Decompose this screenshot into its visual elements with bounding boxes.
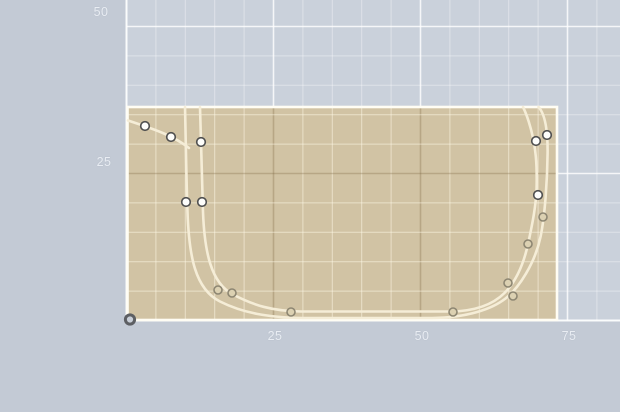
sketch-sheet[interactable] [128, 107, 558, 320]
control-point[interactable] [228, 289, 236, 297]
control-point[interactable] [534, 191, 543, 200]
origin-marker[interactable] [125, 315, 134, 324]
control-point[interactable] [197, 138, 206, 147]
control-point[interactable] [543, 131, 552, 140]
control-point[interactable] [509, 292, 517, 300]
control-point[interactable] [539, 213, 547, 221]
sketch-canvas[interactable] [0, 0, 620, 412]
control-point[interactable] [449, 308, 457, 316]
control-point[interactable] [287, 308, 295, 316]
control-point[interactable] [198, 198, 207, 207]
control-point[interactable] [214, 286, 222, 294]
control-point[interactable] [182, 198, 191, 207]
control-point[interactable] [524, 240, 532, 248]
control-point[interactable] [504, 279, 512, 287]
sketch-editor-app: 50 25 25 50 75 [0, 0, 620, 412]
control-point[interactable] [532, 137, 541, 146]
control-point[interactable] [167, 133, 176, 142]
control-point[interactable] [141, 122, 150, 131]
